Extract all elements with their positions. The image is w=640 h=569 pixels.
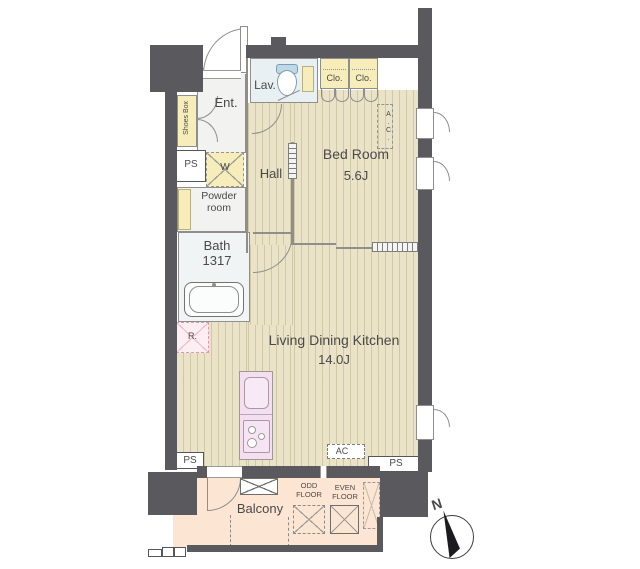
ldk-size-label: 14.0J bbox=[250, 353, 418, 368]
wall-top-right-column bbox=[418, 8, 432, 108]
bedroom-window-2-swing bbox=[434, 161, 450, 181]
bedroom-label: Bed Room bbox=[294, 147, 418, 163]
balcony-dash-line-2 bbox=[288, 517, 289, 547]
hall-label: Hall bbox=[248, 167, 294, 182]
even-floor-label: EVEN FLOOR bbox=[326, 483, 364, 501]
wall-bottom-right-block bbox=[380, 472, 428, 517]
bathtub-drain bbox=[212, 283, 216, 287]
partition-segment-1 bbox=[294, 243, 336, 245]
odd-floor-label: ODD FLOOR bbox=[290, 481, 328, 499]
bedroom-window-1-swing bbox=[434, 112, 450, 132]
closet-door-arc-3 bbox=[350, 89, 364, 102]
balcony-door-threshold bbox=[207, 466, 242, 478]
ent-hall-wall bbox=[246, 58, 248, 253]
closet-left-rail bbox=[323, 69, 346, 70]
wall-top bbox=[246, 45, 420, 58]
closet-right-rail bbox=[352, 69, 375, 70]
ps-bottom-right-label: PS bbox=[378, 458, 414, 469]
compass-north-label: N bbox=[425, 494, 449, 515]
bedroom-window-1 bbox=[416, 108, 434, 139]
even-floor-box bbox=[330, 505, 359, 534]
ldk-sliding-door-pocket bbox=[372, 242, 418, 252]
wall-top-bump bbox=[271, 37, 286, 45]
stove-burner-2 bbox=[258, 433, 265, 440]
bedroom-ac-label: A.C. bbox=[378, 108, 392, 146]
odd-floor-box bbox=[293, 505, 325, 534]
kitchen-divider bbox=[240, 414, 272, 415]
balcony-dash-line-1 bbox=[230, 515, 231, 547]
bottom-window-gap bbox=[320, 466, 327, 478]
powder-room-label: Powder room bbox=[194, 191, 244, 215]
wall-top-left-block bbox=[150, 45, 203, 92]
balcony-step-box-2 bbox=[174, 547, 186, 557]
partition-segment-2 bbox=[336, 247, 372, 249]
balcony-louver-box bbox=[240, 478, 278, 495]
closet-door-arc-2 bbox=[335, 89, 349, 102]
balcony-label: Balcony bbox=[230, 502, 290, 517]
kitchen-sink bbox=[244, 377, 269, 409]
pipe-space-top-label: PS bbox=[176, 159, 206, 170]
closet-left-label: Clo. bbox=[320, 73, 349, 83]
stove-area bbox=[243, 420, 270, 453]
entry-threshold bbox=[203, 70, 241, 79]
wall-right-lower bbox=[418, 440, 432, 472]
closet-door-arc-1 bbox=[321, 89, 335, 102]
entrance-label: Ent. bbox=[206, 96, 246, 111]
wall-left bbox=[165, 92, 177, 470]
closet-right-label: Clo. bbox=[349, 73, 378, 83]
bedroom-size-label: 5.6J bbox=[294, 169, 418, 184]
bathtub-inner bbox=[189, 286, 239, 313]
powder-vanity bbox=[178, 189, 191, 230]
balcony-railing-right bbox=[377, 517, 383, 552]
fridge-label: R. bbox=[176, 331, 209, 341]
wall-bottom-stub bbox=[197, 466, 207, 478]
living-ac-label: AC bbox=[327, 446, 357, 456]
stove-burner-1 bbox=[248, 426, 256, 434]
balcony-step-box-3 bbox=[148, 549, 162, 557]
washer-label: W bbox=[206, 162, 244, 173]
ps-bottom-left-label: PS bbox=[176, 455, 204, 466]
balcony-railing bbox=[187, 545, 378, 552]
wall-bottom-left-block bbox=[148, 472, 197, 515]
lavatory-label: Lav. bbox=[250, 79, 280, 92]
ldk-window-swing bbox=[434, 409, 450, 427]
bedroom-window-2 bbox=[416, 157, 434, 190]
wall-bottom-a bbox=[242, 466, 320, 478]
lav-counter bbox=[302, 66, 314, 92]
floor-plan: Ent. Shoes Box Lav. Clo. Clo. PS W Powde… bbox=[0, 0, 640, 569]
bath-label: Bath bbox=[196, 239, 238, 254]
wall-bottom-b bbox=[327, 466, 380, 478]
stove-burner-3 bbox=[247, 438, 257, 448]
ldk-label: Living Dining Kitchen bbox=[250, 333, 418, 349]
shoes-box-label: Shoes Box bbox=[183, 98, 191, 138]
balcony-step-box-1 bbox=[162, 547, 174, 557]
ldk-window bbox=[416, 405, 434, 440]
wall-right-between-windows bbox=[418, 139, 432, 157]
closet-door-arc-4 bbox=[364, 89, 378, 102]
wall-right-main bbox=[418, 190, 432, 405]
bath-size-label: 1317 bbox=[196, 254, 238, 269]
